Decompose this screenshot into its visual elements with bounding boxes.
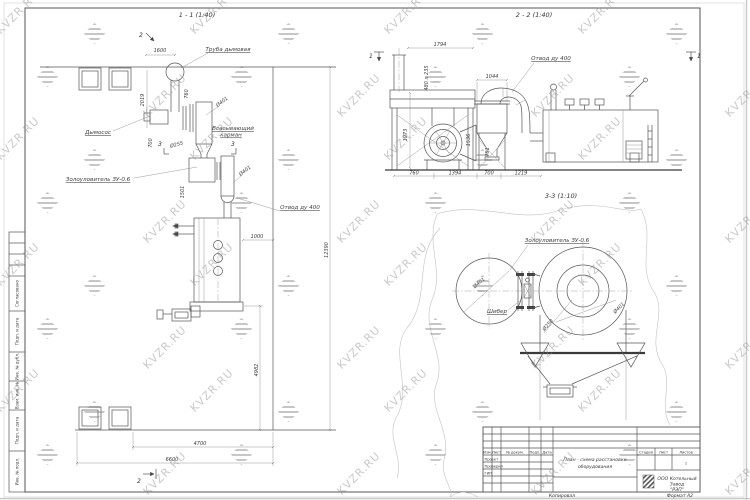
dim-1219: 1219 bbox=[515, 171, 528, 177]
tb-col-izm: Изм. bbox=[483, 451, 491, 455]
dim-12390: 12390 bbox=[324, 242, 330, 258]
dim-751: 751 bbox=[485, 147, 491, 157]
tb-col-podp: Подп. bbox=[530, 451, 541, 455]
tb-col-sheets: Листов bbox=[679, 451, 692, 455]
dim-1973: 1973 bbox=[403, 129, 409, 142]
tb-col-stage: Стадия bbox=[639, 451, 653, 455]
dim-700-plan: 700 bbox=[148, 138, 154, 148]
dim-4982: 4982 bbox=[254, 364, 260, 377]
tb-row-proekt: Проект bbox=[485, 458, 499, 462]
tb-col-data: Дата bbox=[542, 451, 551, 455]
section-3-3-title: 3-3 (1:10) bbox=[545, 192, 577, 200]
label-fan: Дымосос bbox=[84, 130, 111, 136]
dim-1536: 1536 bbox=[466, 134, 472, 147]
label-chimney: Труба дымовая bbox=[206, 47, 252, 53]
doc-title-line2: оборудования bbox=[578, 464, 613, 470]
side-stamp-cell: Инв. № подл. bbox=[15, 458, 20, 486]
format-label: Формат А2 bbox=[667, 493, 693, 499]
section-marker-3: 3 bbox=[231, 141, 235, 148]
title-block: Изм. Лист № докум. Подп. Дата Проект Про… bbox=[483, 427, 700, 499]
tb-row-proveril: Проверил bbox=[485, 465, 503, 469]
dim-1794: 1794 bbox=[434, 42, 447, 48]
company-line1: ООО Котельный bbox=[657, 476, 696, 482]
dim-1044: 1044 bbox=[486, 74, 499, 80]
dim-1501: 1501 bbox=[180, 186, 186, 199]
dim-4700: 4700 bbox=[194, 441, 207, 447]
section-marker-2: 2 bbox=[139, 32, 143, 39]
sheet-frame bbox=[0, 0, 750, 500]
section-2-2-title: 2 - 2 (1:40) bbox=[516, 11, 552, 19]
company-line3: "РЭП" bbox=[670, 487, 684, 493]
tb-col-sheet: Лист bbox=[659, 451, 668, 455]
label-gate: Шибер bbox=[487, 309, 508, 315]
doc-title-line1: План - схема расстановки bbox=[563, 457, 626, 463]
label-suction-pocket-2: карман bbox=[220, 133, 242, 139]
label-outlet-elevation: Отвод ду 400 bbox=[531, 56, 571, 62]
tb-col-doc: № докум. bbox=[506, 451, 524, 455]
side-stamp-agreed: Согласовано bbox=[15, 280, 20, 307]
company-logo-icon bbox=[643, 475, 654, 488]
label-suction-pocket-1: Всасывающий bbox=[212, 126, 254, 132]
tb-row-gip: ГИП bbox=[485, 472, 493, 476]
tb-col-list: Лист bbox=[492, 451, 501, 455]
section-marker-3: 3 bbox=[158, 141, 162, 148]
side-stamp-cell: Подп. и дата bbox=[15, 317, 20, 345]
dim-2019: 2019 bbox=[140, 94, 146, 107]
section-marker-1: 1 bbox=[369, 53, 373, 60]
tb-sheets-value: 1 bbox=[685, 462, 687, 466]
label-ash-catcher: Золоуловитель ЗУ-0.6 bbox=[66, 177, 131, 183]
dim-700-elev: 700 bbox=[484, 171, 494, 177]
section-marker-2: 2 bbox=[137, 478, 141, 485]
label-ash-catcher-33: Золоуловитель ЗУ-0.6 bbox=[525, 238, 590, 244]
copied-label: Копировал bbox=[549, 493, 575, 499]
dim-760-plan: 760 bbox=[184, 89, 190, 99]
side-stamp-cell: Инв. № дубл. bbox=[15, 353, 20, 380]
dim-1394: 1394 bbox=[449, 171, 462, 177]
dim-1000: 1000 bbox=[251, 234, 264, 240]
dim-760-elev: 760 bbox=[409, 171, 419, 177]
dim-1600: 1600 bbox=[154, 48, 167, 54]
section-marker-1: 1 bbox=[697, 53, 701, 60]
dim-480x235: 480 x 235 bbox=[424, 65, 430, 90]
plan-view-title: 1 - 1 (1:40) bbox=[179, 11, 215, 19]
side-stamp-cell: Подп. и дата bbox=[15, 416, 20, 444]
drawing-sheet: Согласовано Подп. и дата Инв. № дубл. Вз… bbox=[0, 0, 750, 500]
dim-6600: 6600 bbox=[166, 457, 179, 463]
label-outlet-plan: Отвод ду 400 bbox=[280, 205, 320, 211]
side-stamp-cell: Взам. инв. № bbox=[15, 382, 20, 409]
company-line2: Завод bbox=[670, 482, 684, 488]
drawing-canvas: Согласовано Подп. и дата Инв. № дубл. Вз… bbox=[0, 0, 750, 500]
